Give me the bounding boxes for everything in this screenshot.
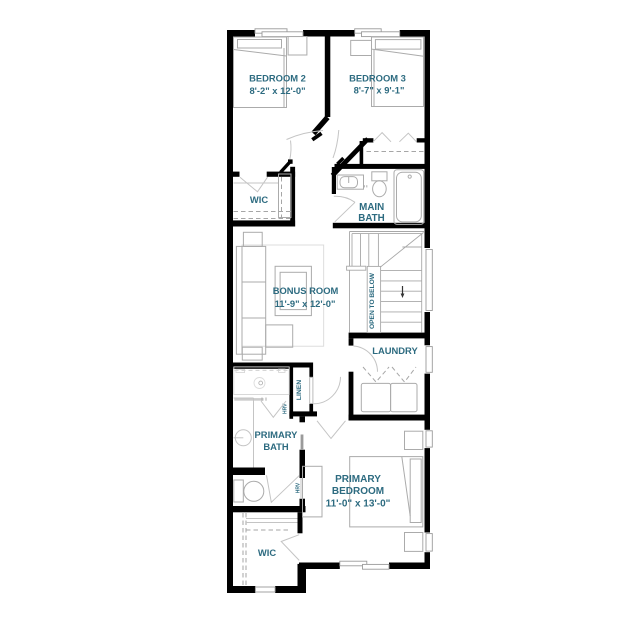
svg-text:11'-0" x 13'-0": 11'-0" x 13'-0" — [326, 499, 391, 510]
svg-text:OPEN TO BELOW: OPEN TO BELOW — [369, 272, 376, 329]
svg-text:WIC: WIC — [250, 194, 268, 205]
svg-text:LAUNDRY: LAUNDRY — [372, 345, 418, 356]
svg-text:BEDROOM 2: BEDROOM 2 — [249, 73, 306, 84]
svg-text:BATH: BATH — [263, 441, 289, 452]
svg-text:BEDROOM 3: BEDROOM 3 — [349, 73, 406, 84]
svg-text:11'-9" x 12'-0": 11'-9" x 12'-0" — [275, 298, 336, 309]
svg-text:BATH: BATH — [358, 213, 384, 224]
svg-text:WIC: WIC — [258, 547, 276, 558]
svg-text:LINEN: LINEN — [296, 380, 303, 400]
svg-text:MAIN: MAIN — [359, 202, 384, 213]
svg-text:PRIMARY: PRIMARY — [255, 429, 299, 440]
svg-text:8'-7" x 9'-1": 8'-7" x 9'-1" — [354, 84, 405, 95]
svg-text:8'-2" x 12'-0": 8'-2" x 12'-0" — [249, 85, 305, 96]
svg-text:PRIMARY: PRIMARY — [335, 474, 381, 485]
svg-text:BONUS ROOM: BONUS ROOM — [273, 285, 339, 296]
svg-text:BEDROOM: BEDROOM — [332, 486, 384, 497]
